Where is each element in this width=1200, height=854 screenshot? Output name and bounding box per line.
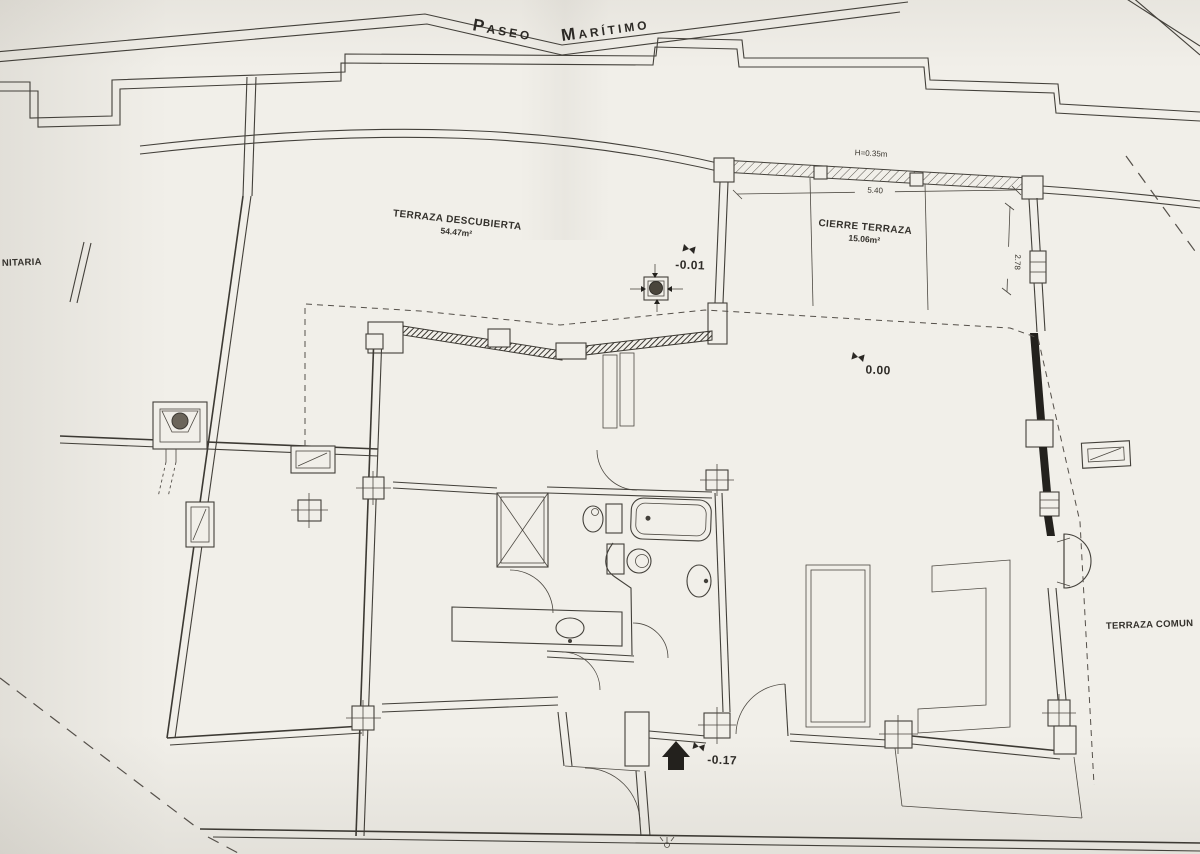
dim-terrace-width: 5.40 bbox=[867, 186, 884, 196]
entrance-column-right bbox=[879, 715, 918, 754]
floor-plan-svg: Paseo Marítimo bbox=[0, 0, 1200, 854]
label-adjacent-left: NITARIA bbox=[2, 257, 42, 269]
dim-terrace-depth: 2.78 bbox=[1013, 254, 1023, 270]
terrace-vent-vertical bbox=[186, 502, 214, 547]
terrace-vent-horizontal bbox=[291, 446, 335, 473]
level-terrace-drain: -0.01 bbox=[675, 257, 705, 272]
floor-plan-scan: Paseo Marítimo bbox=[0, 0, 1200, 854]
window-symbol-east bbox=[1040, 492, 1059, 516]
window-notch bbox=[1026, 420, 1053, 447]
exterior-vent bbox=[1081, 441, 1130, 468]
level-entrance: -0.17 bbox=[707, 752, 737, 767]
entrance-column-left bbox=[698, 707, 736, 744]
dim-parapet-height: H=0.35m bbox=[855, 148, 888, 159]
level-interior: 0.00 bbox=[865, 363, 891, 378]
window-symbol-right-wall bbox=[1030, 251, 1046, 283]
